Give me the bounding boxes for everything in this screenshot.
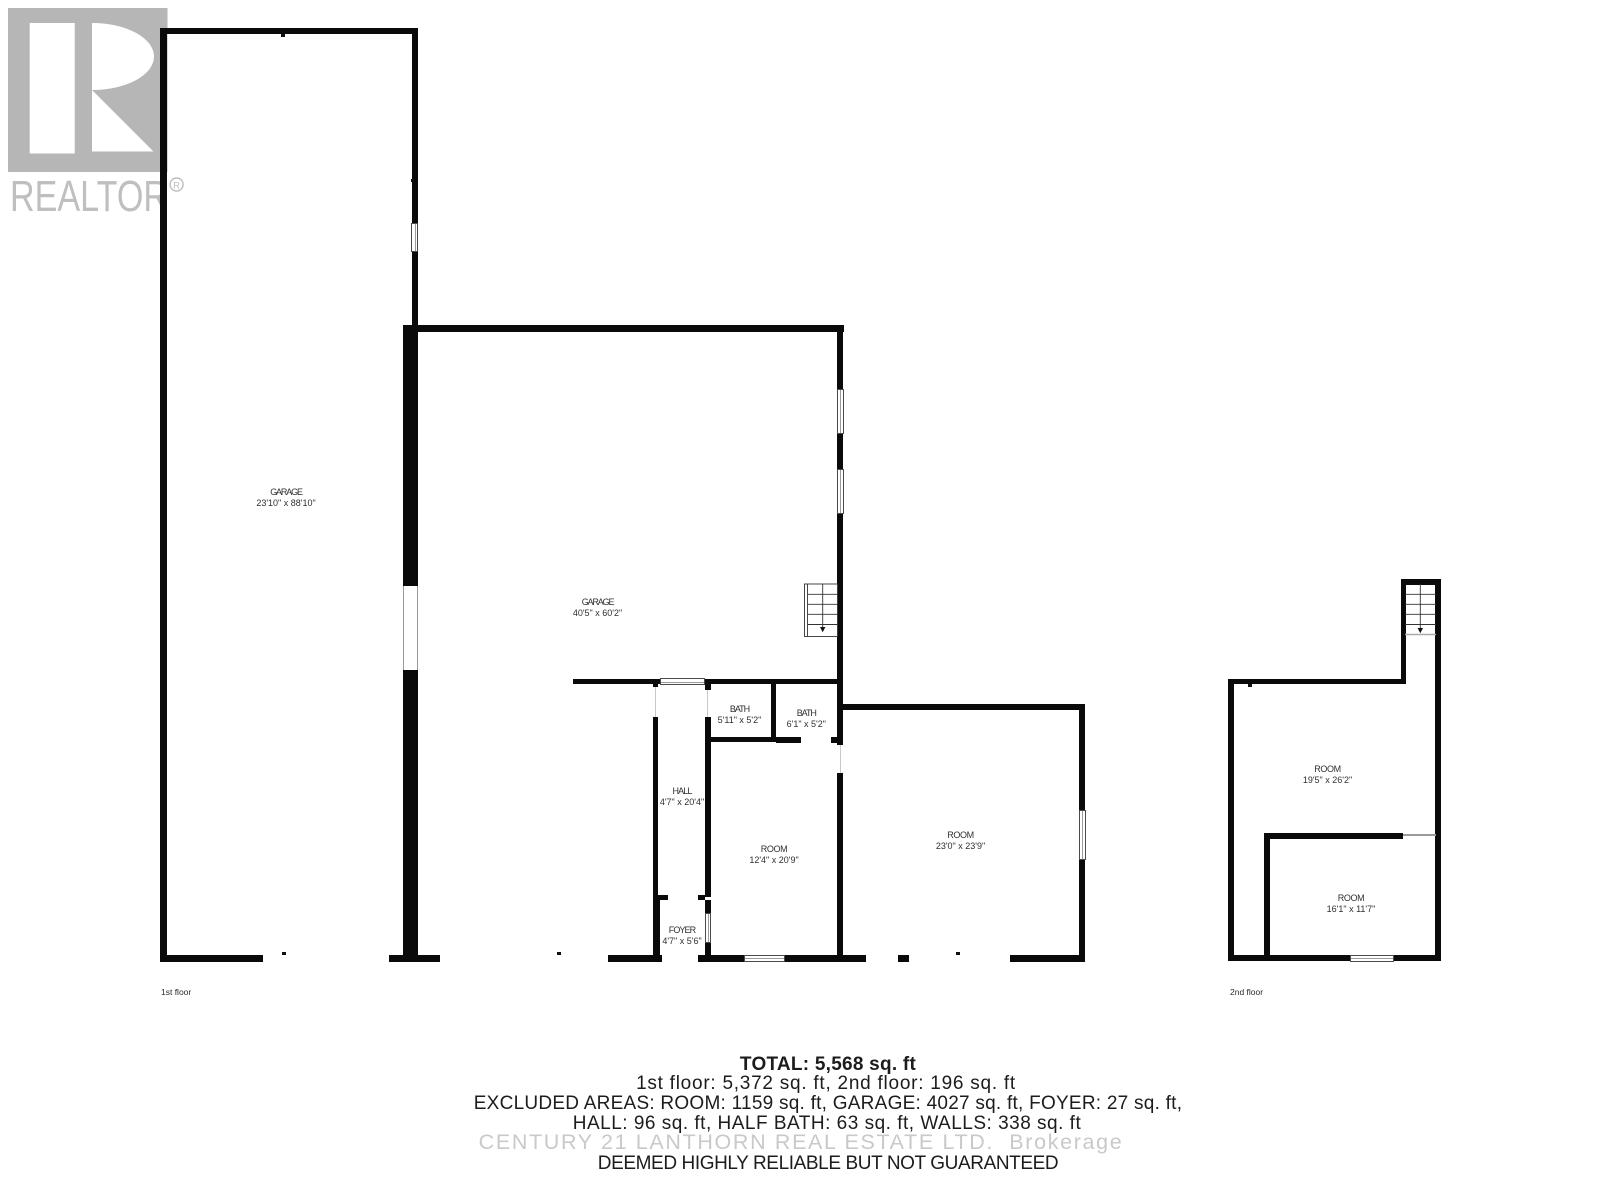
svg-text:REALTOR: REALTOR (10, 172, 168, 221)
svg-text:R: R (173, 181, 180, 192)
